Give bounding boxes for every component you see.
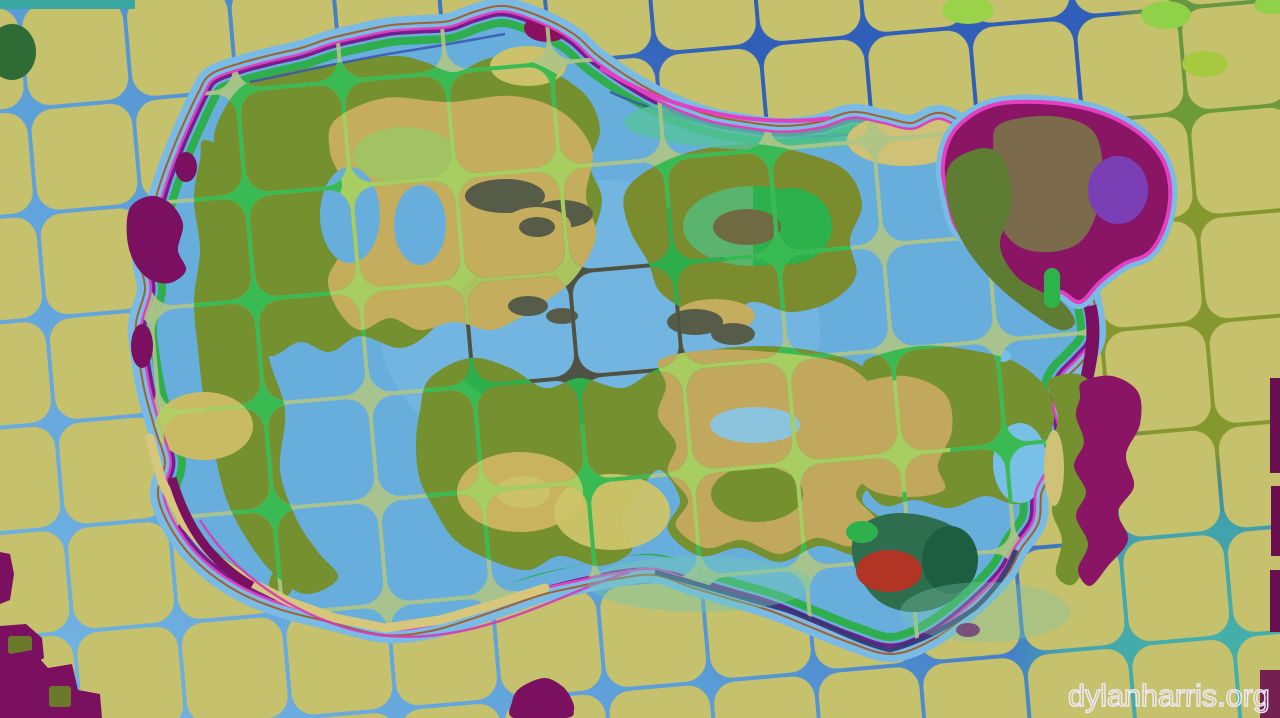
svg-text:dylanharris.org: dylanharris.org (1068, 679, 1270, 713)
